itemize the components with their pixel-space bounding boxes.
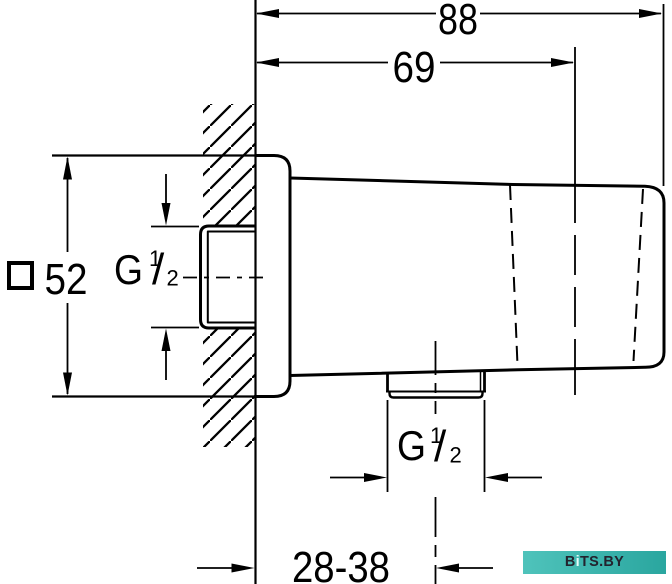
dimension-52: 52 [9,157,88,396]
thread-label-slash: / [434,422,447,471]
arrowhead-left-icon [256,9,279,18]
square-symbol-icon [9,263,32,288]
thread-dimension-left: G 1 / 2 [114,174,179,380]
arrowhead-left-icon [485,473,508,482]
dim-value-88: 88 [438,0,478,44]
product-outline [201,156,665,398]
arrowhead-right-icon [364,473,387,482]
dim-value-52: 52 [45,255,88,304]
arrowhead-left-icon [436,564,459,573]
thread-label-g: G [114,246,143,293]
arrowhead-down-icon [63,373,72,396]
arrowhead-left-icon [256,58,279,67]
thread-dimension-bottom: G 1 / 2 [330,422,542,482]
dim-value-69: 69 [393,43,436,92]
arrowhead-right-icon [232,564,255,573]
arrowhead-down-icon [162,203,171,226]
thread-label-denominator: 2 [450,443,462,468]
body-outline [290,178,664,376]
flange-outline [256,156,291,397]
body-edge-dashed-front [510,185,518,365]
arrowhead-right-icon [551,58,574,67]
technical-drawing-svg: 88 69 52 G 1 / 2 [0,0,672,584]
watermark-text-rest: TS.BY [580,555,624,570]
wall-hatching-lower [203,328,255,447]
watermark-text-b: B [565,555,576,570]
arrowhead-up-icon [162,329,171,352]
wall-hatching-upper [203,104,255,226]
dimension-69: 69 [256,43,574,92]
body-edge-dashed-rear [634,189,644,361]
thread-label-g: G [397,422,426,469]
drawing-canvas: 88 69 52 G 1 / 2 [0,0,672,584]
dimension-28-38: 28-38 [197,543,493,584]
thread-label-slash: / [152,245,165,294]
wall-section [203,0,256,584]
dimension-88: 88 [256,0,662,44]
inlet-thread-inner [208,232,256,323]
arrowhead-up-icon [63,157,72,180]
extension-lines [52,4,664,492]
watermark-badge: BiTS.BY [523,551,666,574]
dim-value-28-38: 28-38 [292,543,390,584]
arrowhead-right-icon [639,9,662,18]
thread-label-denominator: 2 [167,266,179,291]
